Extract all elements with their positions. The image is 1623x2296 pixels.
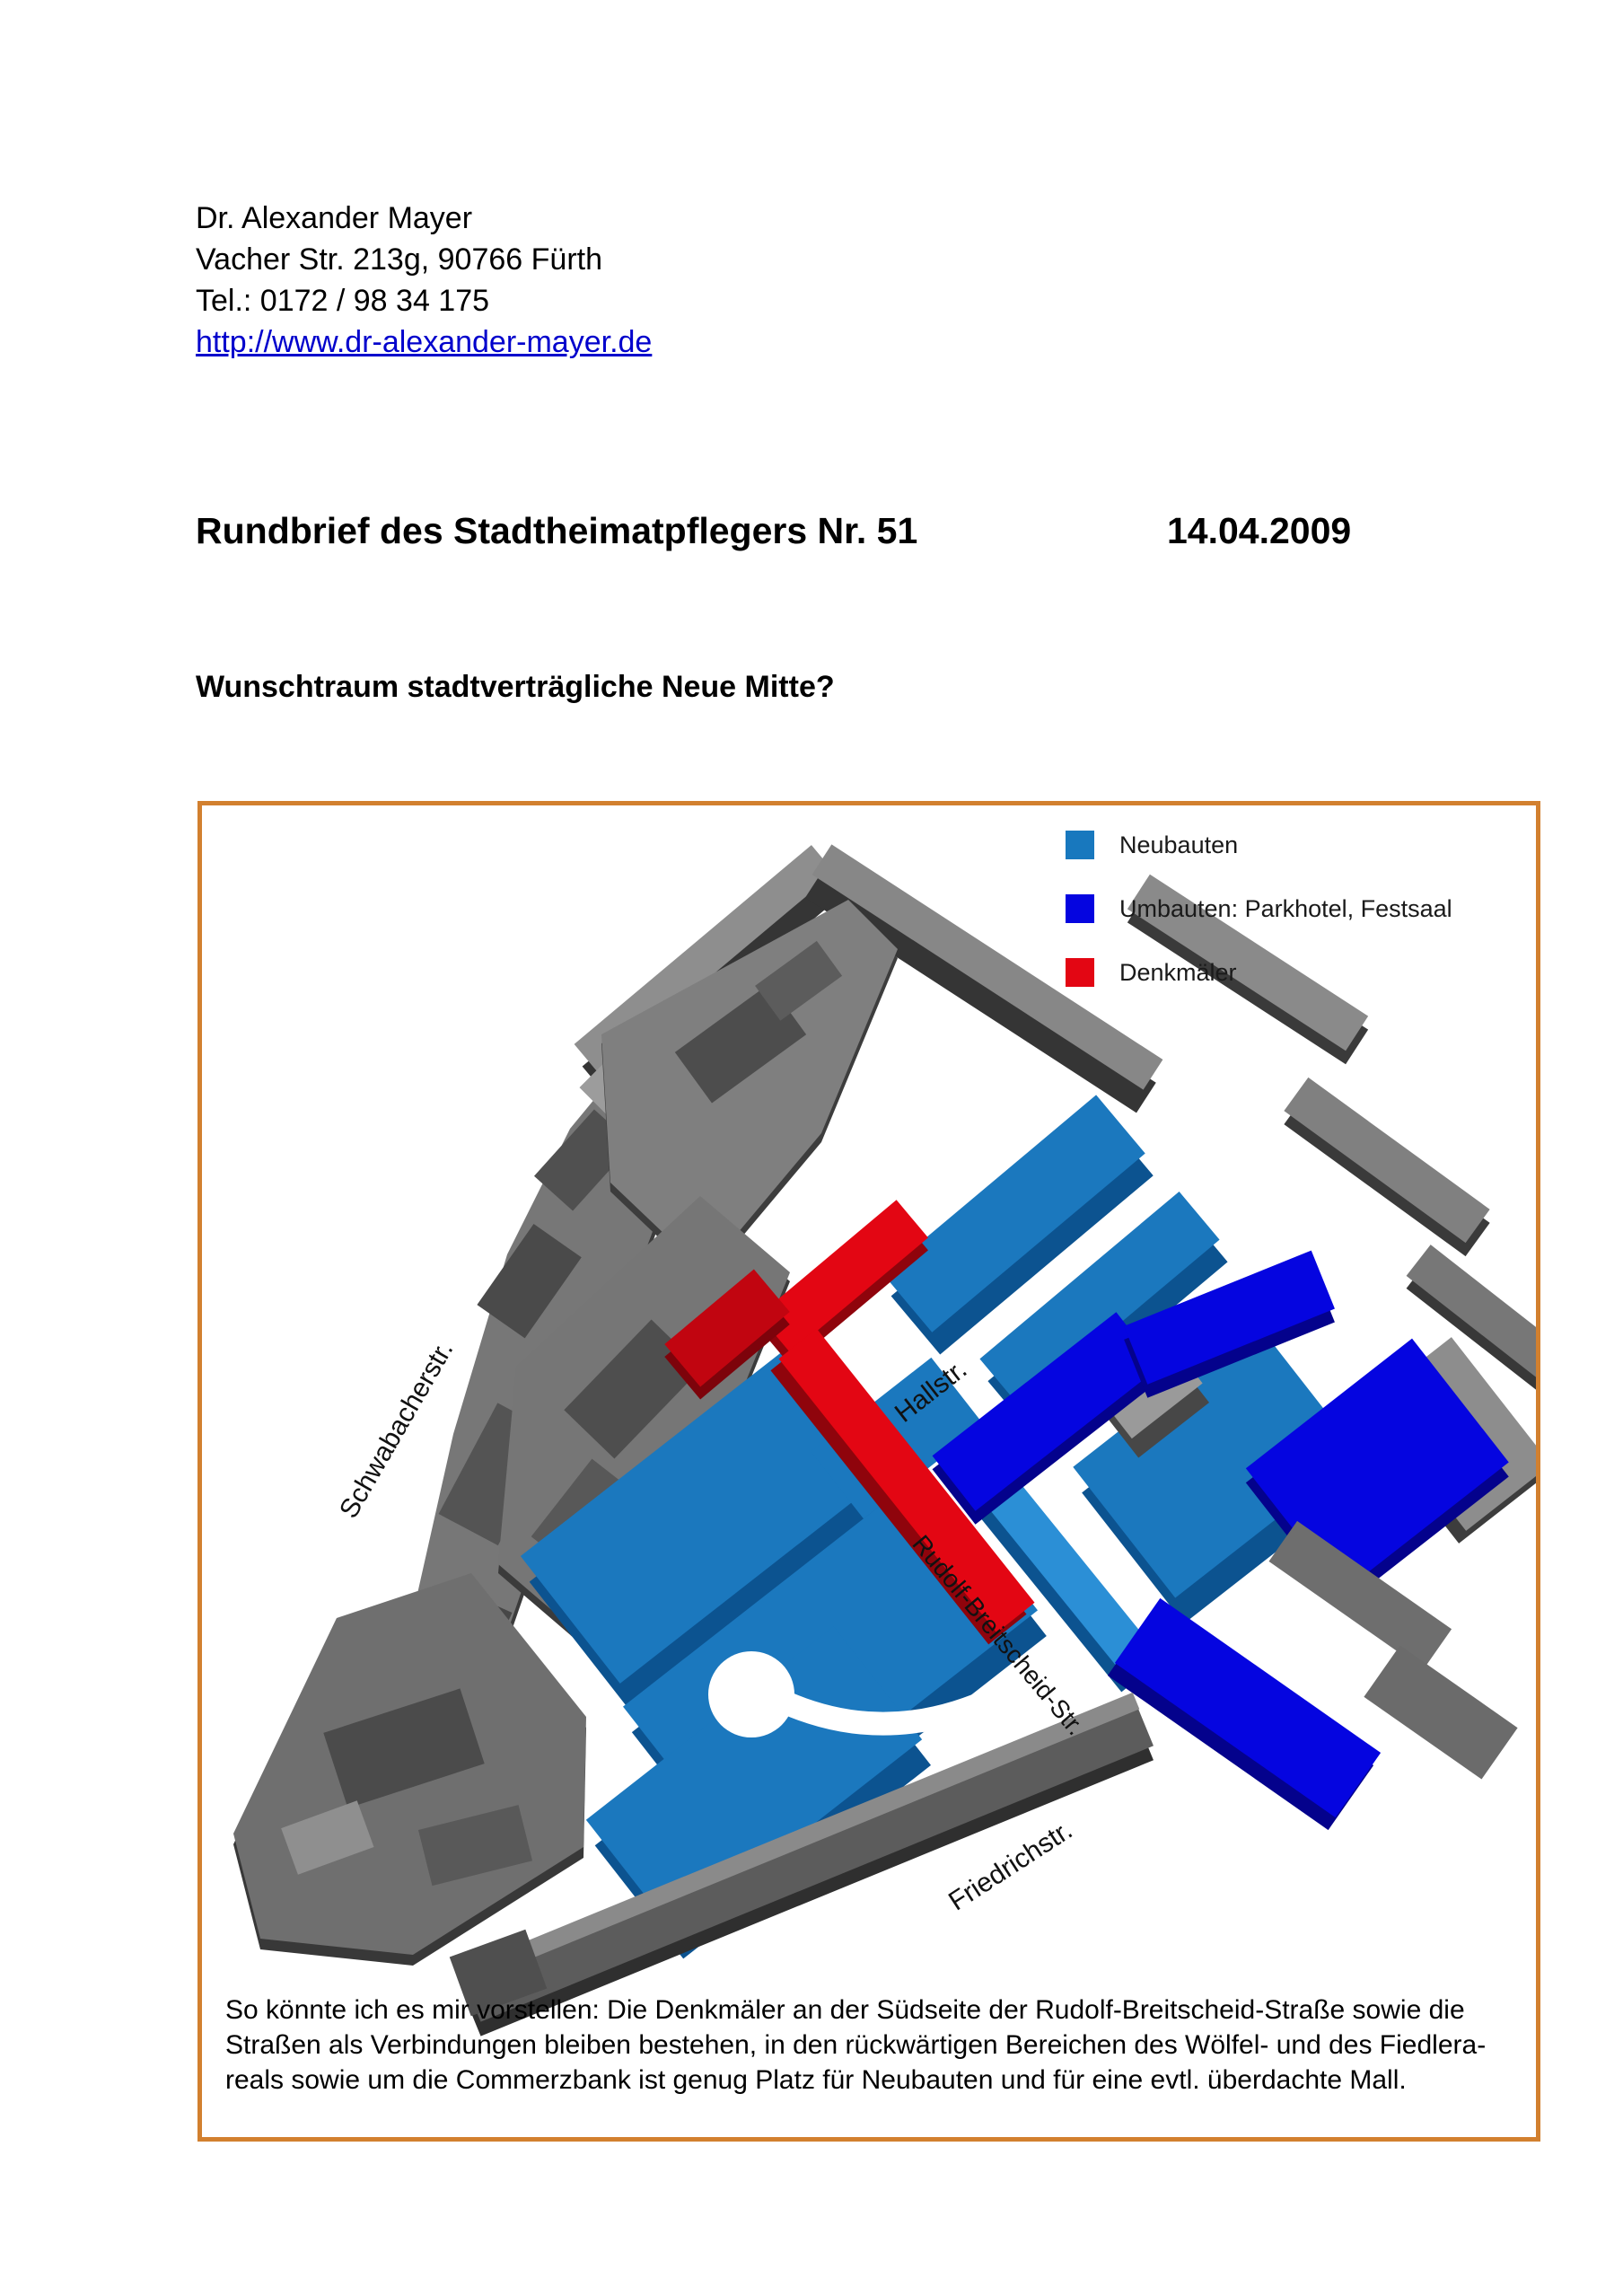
gray-buildings-bottom-left-cluster: [233, 1573, 586, 1966]
legend-row-denkmaeler: Denkmäler: [1066, 958, 1452, 987]
caption-line-3: reals sowie um die Commerzbank ist genug…: [225, 2063, 1518, 2098]
umbauten-swatch-icon: [1066, 894, 1094, 923]
caption-line-1: So könnte ich es mir vorstellen: Die Den…: [225, 1993, 1518, 2028]
page-title: Rundbrief des Stadtheimatpflegers Nr. 51: [196, 510, 917, 551]
article-subtitle: Wunschtraum stadtverträgliche Neue Mitte…: [196, 670, 835, 705]
legend-label-neubauten: Neubauten: [1119, 831, 1238, 859]
caption-line-2: Straßen als Verbindungen bleiben bestehe…: [225, 2028, 1518, 2063]
sender-block: Dr. Alexander Mayer Vacher Str. 213g, 90…: [196, 198, 652, 363]
sender-website-link[interactable]: http://www.dr-alexander-mayer.de: [196, 321, 652, 363]
round-plaza: [708, 1651, 794, 1737]
map-figure: Schwabacherstr. Hallstr. Rudolf-Breitsch…: [197, 801, 1540, 2142]
legend-row-umbauten: Umbauten: Parkhotel, Festsaal: [1066, 894, 1452, 923]
legend-label-denkmaeler: Denkmäler: [1119, 959, 1237, 987]
neubauten-swatch-icon: [1066, 831, 1094, 859]
sender-phone: Tel.: 0172 / 98 34 175: [196, 280, 652, 321]
figure-caption: So könnte ich es mir vorstellen: Die Den…: [225, 1993, 1518, 2098]
legend-label-umbauten: Umbauten: Parkhotel, Festsaal: [1119, 895, 1452, 923]
gray-buildings-upper-middle-cluster: [601, 900, 898, 1281]
legend-row-neubauten: Neubauten: [1066, 831, 1452, 859]
doc-date: 14.04.2009: [1167, 510, 1351, 552]
map-legend: Neubauten Umbauten: Parkhotel, Festsaal …: [1066, 831, 1452, 1022]
denkmaeler-swatch-icon: [1066, 958, 1094, 987]
document-page: Dr. Alexander Mayer Vacher Str. 213g, 90…: [0, 0, 1623, 2296]
title-row: Rundbrief des Stadtheimatpflegers Nr. 51…: [196, 510, 1434, 564]
sender-address: Vacher Str. 213g, 90766 Fürth: [196, 239, 652, 280]
sender-name: Dr. Alexander Mayer: [196, 198, 652, 239]
